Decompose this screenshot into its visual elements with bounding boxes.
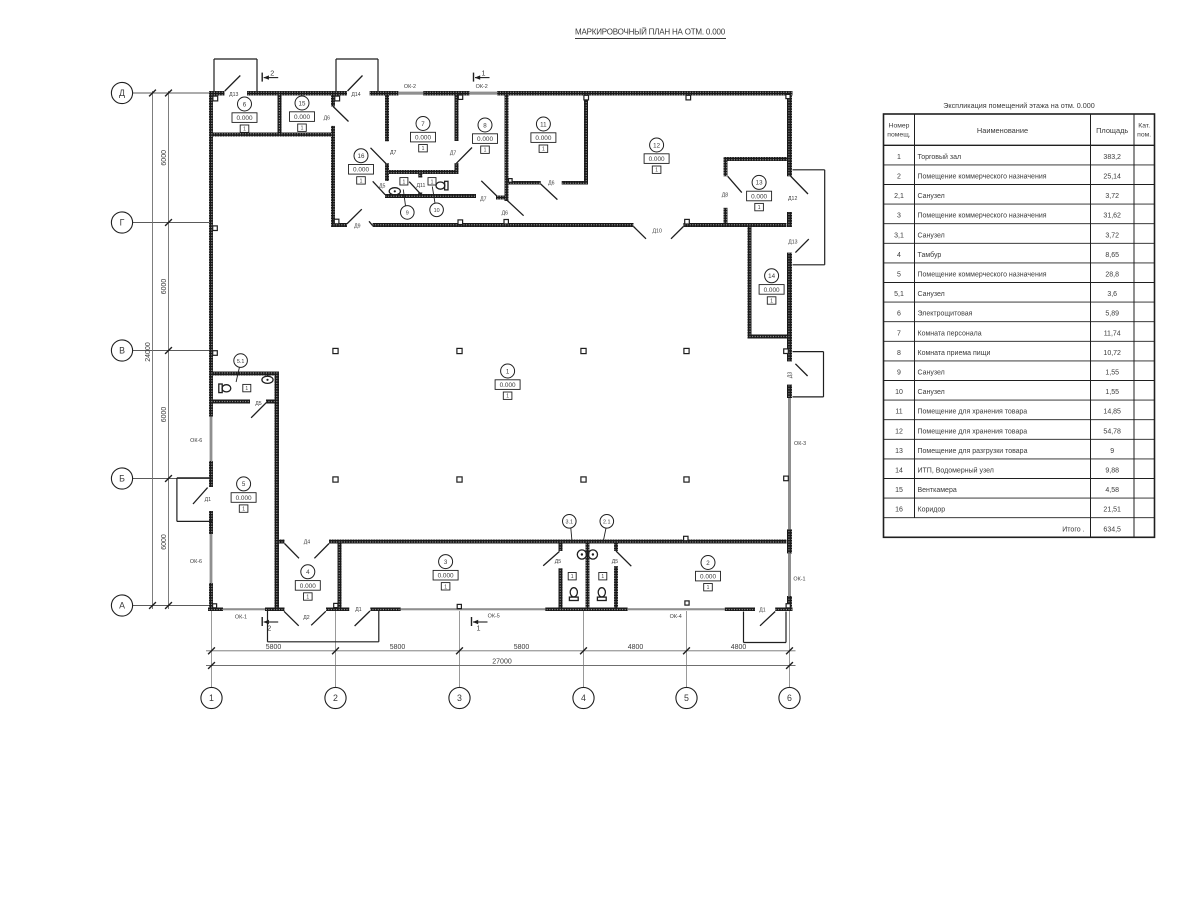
svg-text:28,8: 28,8 xyxy=(1105,272,1119,279)
svg-text:Электрощитовая: Электрощитовая xyxy=(918,311,973,318)
svg-text:0.000: 0.000 xyxy=(353,167,369,174)
svg-text:9: 9 xyxy=(1110,448,1114,455)
svg-text:0.000: 0.000 xyxy=(477,136,493,143)
svg-text:2.1: 2.1 xyxy=(603,520,611,526)
svg-text:0.000: 0.000 xyxy=(535,135,551,142)
svg-text:Помещение для хранения товара: Помещение для хранения товара xyxy=(918,409,1028,416)
svg-text:Д6: Д6 xyxy=(502,210,509,216)
svg-text:Б: Б xyxy=(119,474,125,484)
svg-text:1: 1 xyxy=(306,595,309,601)
svg-text:21,51: 21,51 xyxy=(1103,507,1121,514)
svg-text:3,72: 3,72 xyxy=(1105,193,1119,200)
svg-text:6000: 6000 xyxy=(161,150,168,166)
svg-text:1: 1 xyxy=(422,146,425,152)
svg-text:3: 3 xyxy=(897,213,901,220)
svg-text:3: 3 xyxy=(444,559,448,566)
svg-text:5: 5 xyxy=(897,272,901,279)
svg-text:6000: 6000 xyxy=(161,534,168,550)
svg-text:5.1: 5.1 xyxy=(237,359,245,365)
svg-text:0.000: 0.000 xyxy=(700,574,716,581)
svg-text:ОК-2: ОК-2 xyxy=(476,84,488,90)
svg-text:0.000: 0.000 xyxy=(237,115,253,122)
svg-text:Коридор: Коридор xyxy=(918,507,946,514)
svg-text:4,58: 4,58 xyxy=(1105,487,1119,494)
svg-text:383,2: 383,2 xyxy=(1103,154,1121,161)
svg-text:0.000: 0.000 xyxy=(649,156,665,163)
svg-text:ОК-6: ОК-6 xyxy=(190,438,202,444)
svg-text:Помещение коммерческого назнач: Помещение коммерческого назначения xyxy=(918,174,1047,181)
svg-text:8: 8 xyxy=(897,350,901,357)
svg-text:Итого .: Итого . xyxy=(1062,526,1084,533)
svg-text:10: 10 xyxy=(895,389,903,396)
svg-text:13: 13 xyxy=(895,448,903,455)
svg-text:8: 8 xyxy=(483,122,487,129)
svg-text:Д6: Д6 xyxy=(324,116,331,122)
svg-text:А: А xyxy=(119,601,125,611)
svg-text:Д1: Д1 xyxy=(355,607,362,613)
svg-text:Помещение коммерческого назнач: Помещение коммерческого назначения xyxy=(918,272,1047,279)
svg-text:0.000: 0.000 xyxy=(751,193,767,200)
svg-text:Д1: Д1 xyxy=(759,607,766,613)
svg-text:24000: 24000 xyxy=(145,342,152,362)
svg-text:Д7: Д7 xyxy=(390,150,397,156)
svg-text:7: 7 xyxy=(897,330,901,337)
svg-text:5,89: 5,89 xyxy=(1105,311,1119,318)
svg-text:0.000: 0.000 xyxy=(764,287,780,294)
svg-text:Комната приема пищи: Комната приема пищи xyxy=(918,350,991,357)
svg-text:1: 1 xyxy=(403,179,406,185)
svg-text:16: 16 xyxy=(358,153,365,160)
svg-text:3.1: 3.1 xyxy=(566,520,574,526)
svg-text:1,55: 1,55 xyxy=(1105,370,1119,377)
svg-text:ОК-4: ОК-4 xyxy=(670,614,682,620)
svg-text:10,72: 10,72 xyxy=(1103,350,1121,357)
svg-text:Помещение для хранения товара: Помещение для хранения товара xyxy=(918,428,1028,435)
svg-text:3: 3 xyxy=(457,693,462,703)
svg-text:4800: 4800 xyxy=(731,644,747,651)
svg-text:5: 5 xyxy=(242,481,246,488)
svg-text:Д6: Д6 xyxy=(548,180,555,186)
svg-text:1: 1 xyxy=(571,574,574,580)
svg-text:1: 1 xyxy=(484,148,487,154)
svg-text:1: 1 xyxy=(506,394,509,400)
svg-text:12: 12 xyxy=(895,428,903,435)
svg-text:Д5: Д5 xyxy=(555,559,562,565)
svg-text:1: 1 xyxy=(601,574,604,580)
svg-text:6: 6 xyxy=(787,693,792,703)
svg-text:Д3: Д3 xyxy=(788,372,794,379)
svg-text:Санузел: Санузел xyxy=(918,291,945,298)
svg-text:0.000: 0.000 xyxy=(415,135,431,142)
svg-text:ОК-6: ОК-6 xyxy=(190,559,202,565)
svg-text:15: 15 xyxy=(895,487,903,494)
svg-text:54,78: 54,78 xyxy=(1103,428,1121,435)
svg-text:12: 12 xyxy=(653,142,660,149)
svg-text:Санузел: Санузел xyxy=(918,193,945,200)
svg-text:0.000: 0.000 xyxy=(300,583,316,590)
svg-text:0.000: 0.000 xyxy=(294,114,310,121)
svg-text:Площадь: Площадь xyxy=(1096,126,1128,135)
svg-text:1: 1 xyxy=(477,623,481,632)
svg-text:Номер: Номер xyxy=(889,123,910,130)
svg-text:Г: Г xyxy=(120,218,125,228)
svg-text:Д7: Д7 xyxy=(480,196,487,202)
svg-text:1,55: 1,55 xyxy=(1105,389,1119,396)
svg-text:1: 1 xyxy=(542,147,545,153)
svg-text:25,14: 25,14 xyxy=(1103,174,1121,181)
svg-text:1: 1 xyxy=(758,205,761,211)
svg-text:8,65: 8,65 xyxy=(1105,252,1119,259)
svg-text:Санузел: Санузел xyxy=(918,370,945,377)
svg-text:1: 1 xyxy=(301,126,304,132)
svg-text:В: В xyxy=(119,346,125,356)
svg-text:Д10: Д10 xyxy=(653,228,662,234)
svg-text:помещ.: помещ. xyxy=(887,132,911,139)
svg-text:5: 5 xyxy=(684,693,689,703)
svg-text:1: 1 xyxy=(360,178,363,184)
svg-text:3,72: 3,72 xyxy=(1105,232,1119,239)
svg-text:Санузел: Санузел xyxy=(918,389,945,396)
svg-text:Наименование: Наименование xyxy=(977,126,1028,135)
svg-text:ИТП, Водомерный узел: ИТП, Водомерный узел xyxy=(918,467,994,475)
svg-text:6000: 6000 xyxy=(161,407,168,423)
svg-text:1: 1 xyxy=(242,507,245,513)
svg-text:1: 1 xyxy=(897,154,901,161)
svg-text:5800: 5800 xyxy=(390,644,406,651)
svg-text:2,1: 2,1 xyxy=(894,193,904,200)
svg-text:31,62: 31,62 xyxy=(1103,213,1121,220)
svg-text:1: 1 xyxy=(431,179,434,185)
svg-text:ОК-5: ОК-5 xyxy=(488,613,500,619)
svg-text:2: 2 xyxy=(333,693,338,703)
svg-text:Д2: Д2 xyxy=(303,615,310,621)
svg-text:5800: 5800 xyxy=(266,644,282,651)
svg-text:6000: 6000 xyxy=(161,279,168,295)
svg-text:9,88: 9,88 xyxy=(1105,468,1119,475)
svg-text:Санузел: Санузел xyxy=(918,232,945,239)
svg-text:Помещение для разгрузки товара: Помещение для разгрузки товара xyxy=(918,448,1028,455)
svg-text:Д7: Д7 xyxy=(450,151,457,157)
svg-text:1: 1 xyxy=(506,368,510,375)
svg-text:пом.: пом. xyxy=(1137,132,1151,139)
svg-text:2: 2 xyxy=(270,69,274,78)
svg-text:Д12: Д12 xyxy=(788,196,797,202)
svg-text:2: 2 xyxy=(897,174,901,181)
svg-text:ОК-3: ОК-3 xyxy=(794,441,806,447)
svg-text:Д5: Д5 xyxy=(612,559,619,565)
svg-text:Д8: Д8 xyxy=(722,192,729,198)
svg-text:0.000: 0.000 xyxy=(438,573,454,580)
svg-text:МАРКИРОВОЧНЫЙ ПЛАН НА ОТМ. 0.0: МАРКИРОВОЧНЫЙ ПЛАН НА ОТМ. 0.000 xyxy=(575,28,726,37)
svg-text:5,1: 5,1 xyxy=(894,291,904,298)
svg-text:4: 4 xyxy=(306,569,310,576)
svg-text:Д1: Д1 xyxy=(205,497,212,503)
svg-text:Экспликация помещений этажа на: Экспликация помещений этажа на отм. 0.00… xyxy=(943,101,1095,110)
svg-text:11,74: 11,74 xyxy=(1104,330,1121,337)
svg-text:4800: 4800 xyxy=(628,644,644,651)
svg-text:2: 2 xyxy=(706,560,710,567)
svg-text:0.000: 0.000 xyxy=(500,382,516,389)
svg-text:Д5: Д5 xyxy=(379,183,386,189)
svg-text:1: 1 xyxy=(655,168,658,174)
svg-text:1: 1 xyxy=(243,127,246,133)
svg-text:Д11: Д11 xyxy=(417,183,426,189)
svg-text:11: 11 xyxy=(895,409,902,416)
svg-text:4: 4 xyxy=(897,252,901,259)
svg-text:14: 14 xyxy=(895,468,903,475)
svg-text:ОК-2: ОК-2 xyxy=(404,84,416,90)
svg-text:3,6: 3,6 xyxy=(1107,291,1117,298)
svg-text:Тамбур: Тамбур xyxy=(918,251,942,259)
svg-text:Д9: Д9 xyxy=(354,224,361,230)
svg-text:Д5: Д5 xyxy=(255,401,262,407)
svg-text:6: 6 xyxy=(897,311,901,318)
svg-text:Торговый зал: Торговый зал xyxy=(918,153,962,161)
svg-text:1: 1 xyxy=(482,69,486,78)
svg-text:Д4: Д4 xyxy=(304,539,311,545)
svg-text:11: 11 xyxy=(540,121,547,128)
svg-text:10: 10 xyxy=(434,208,440,214)
svg-text:16: 16 xyxy=(895,507,903,514)
svg-text:Кат.: Кат. xyxy=(1138,123,1150,130)
svg-text:1: 1 xyxy=(707,585,710,591)
svg-text:27000: 27000 xyxy=(492,659,512,666)
svg-text:ОК-1: ОК-1 xyxy=(793,577,805,583)
svg-text:4: 4 xyxy=(581,693,586,703)
svg-text:14,85: 14,85 xyxy=(1103,409,1121,416)
svg-text:Комната персонала: Комната персонала xyxy=(918,330,982,337)
svg-text:Д14: Д14 xyxy=(351,92,360,98)
svg-text:Д13: Д13 xyxy=(229,92,238,98)
svg-text:7: 7 xyxy=(421,121,425,128)
svg-text:1: 1 xyxy=(444,584,447,590)
svg-text:15: 15 xyxy=(299,100,306,107)
svg-text:5800: 5800 xyxy=(514,644,530,651)
svg-text:Д13: Д13 xyxy=(788,239,797,245)
svg-text:9: 9 xyxy=(897,370,901,377)
svg-text:1: 1 xyxy=(245,386,248,392)
svg-text:6: 6 xyxy=(243,101,247,108)
svg-text:9: 9 xyxy=(406,211,409,217)
svg-text:0.000: 0.000 xyxy=(236,495,252,502)
svg-text:3,1: 3,1 xyxy=(894,232,904,239)
svg-text:ОК-1: ОК-1 xyxy=(235,615,247,621)
svg-text:Венткамера: Венткамера xyxy=(918,487,957,494)
svg-text:13: 13 xyxy=(756,180,763,187)
svg-text:1: 1 xyxy=(209,693,214,703)
svg-text:Помещение коммерческого назнач: Помещение коммерческого назначения xyxy=(918,213,1047,220)
svg-text:634,5: 634,5 xyxy=(1103,526,1121,533)
svg-text:1: 1 xyxy=(770,299,773,305)
svg-text:Д: Д xyxy=(119,88,125,98)
svg-text:14: 14 xyxy=(768,273,775,280)
